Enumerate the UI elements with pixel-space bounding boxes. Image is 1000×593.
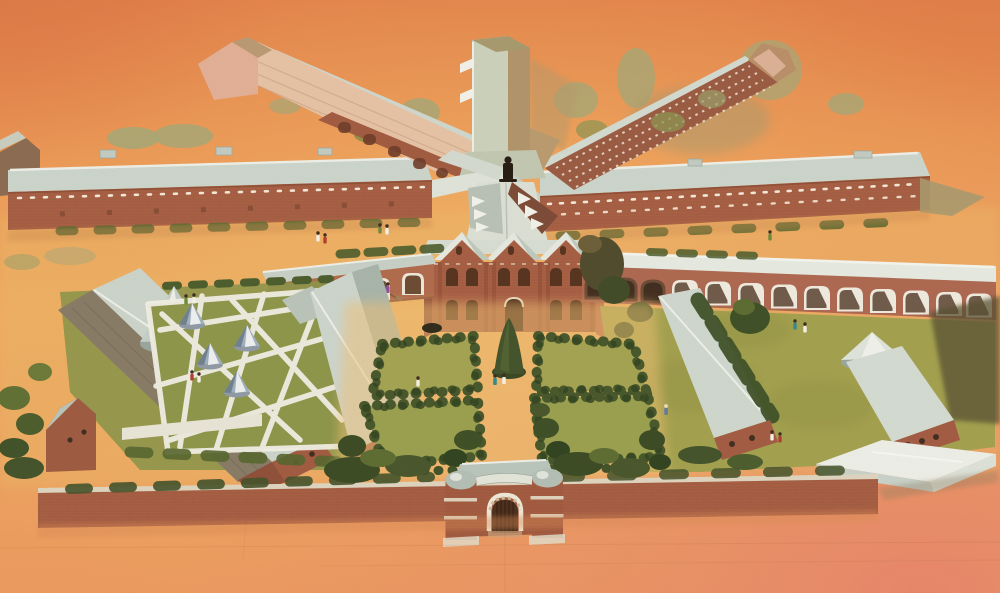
painting-stage <box>0 0 1000 593</box>
paper-texture <box>0 0 1000 593</box>
watercolor-painting <box>0 0 1000 593</box>
